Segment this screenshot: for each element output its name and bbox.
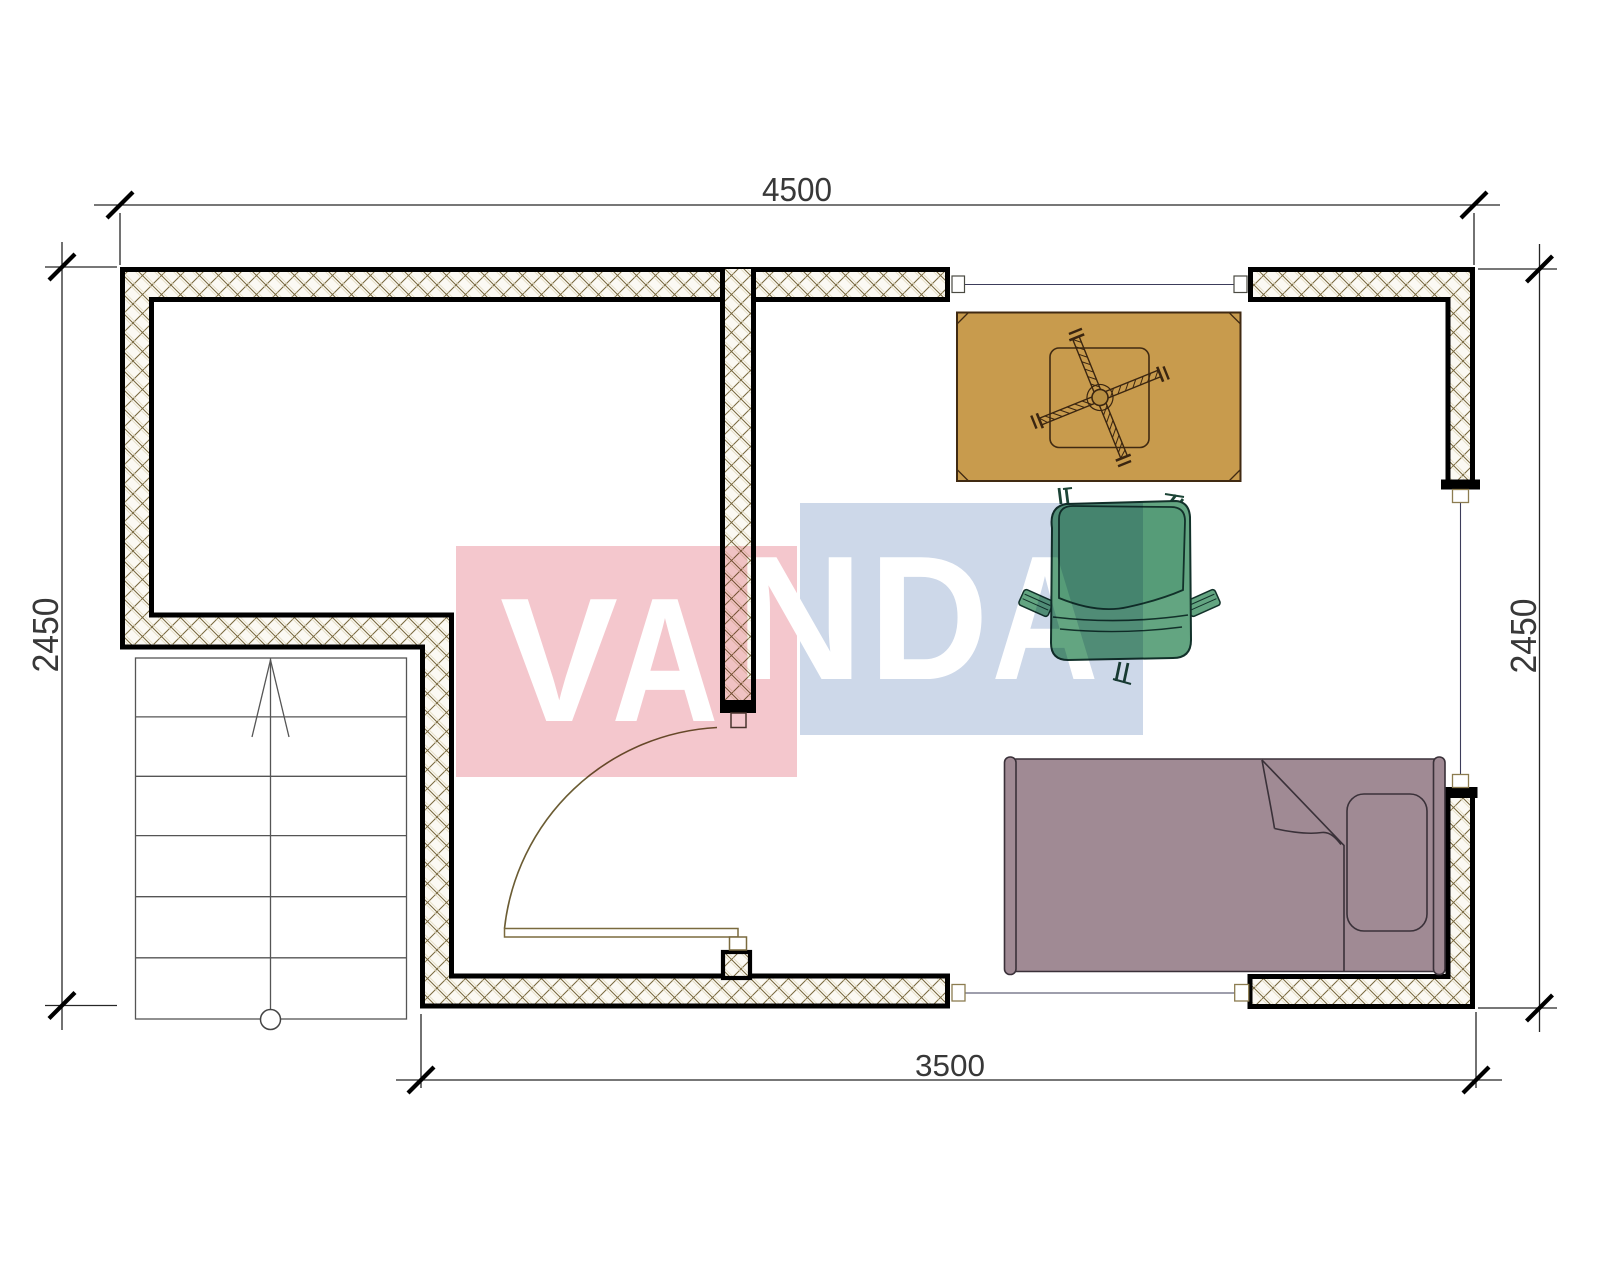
svg-text:A: A xyxy=(612,561,719,759)
svg-text:D: D xyxy=(869,519,989,717)
svg-text:A: A xyxy=(992,519,1099,717)
svg-text:V: V xyxy=(500,561,618,759)
svg-text:N: N xyxy=(736,519,864,717)
